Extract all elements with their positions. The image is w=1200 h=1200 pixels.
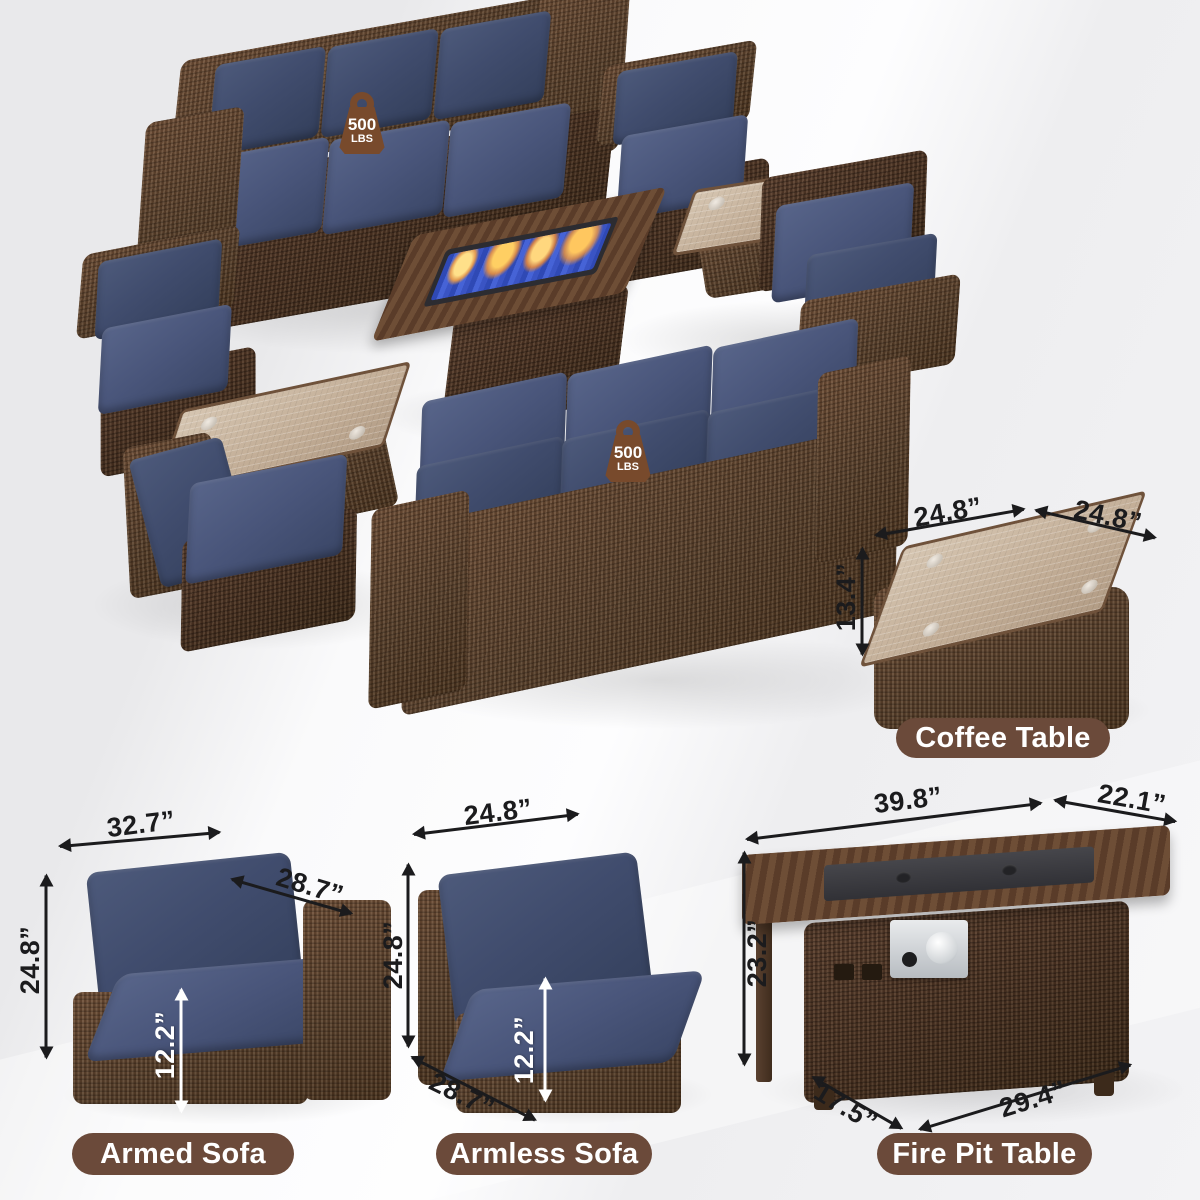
armed-sofa-seat-height-dim: 12.2” <box>150 1002 180 1088</box>
weight-value: 500 <box>348 116 376 133</box>
weight-icon-body: 500 LBS <box>338 107 386 154</box>
armless-sofa-seat-height-dim: 12.2” <box>509 1007 539 1093</box>
armless-sofa-label: Armless Sofa <box>436 1133 652 1175</box>
gas-control-panel <box>890 920 968 978</box>
coffee-table-product <box>862 505 1152 740</box>
armless-sofa-height-arrow <box>407 865 410 1047</box>
armless-sofa-product <box>418 855 703 1115</box>
fire-pit-burner-tray <box>423 216 619 307</box>
patio-set-dimension-infographic: 500 LBS <box>0 0 1200 1200</box>
armed-sofa-seat-height-arrow <box>180 990 183 1112</box>
ignition-button <box>902 952 917 967</box>
fire-pit-table-label-text: Fire Pit Table <box>892 1138 1076 1171</box>
armless-sofa-height-dim: 24.8” <box>378 912 408 998</box>
fire-pit-height-arrow <box>743 853 746 1065</box>
armed-sofa-label-text: Armed Sofa <box>100 1138 266 1171</box>
weight-capacity-icon: 500 LBS <box>338 92 386 154</box>
weight-icon-body: 500 LBS <box>604 435 652 482</box>
coffee-table-label: Coffee Table <box>896 718 1110 758</box>
armed-sofa-height-dim: 24.8” <box>15 917 45 1003</box>
fire-pit-burner-insert <box>824 846 1094 901</box>
coffee-table-height-arrow <box>861 549 864 655</box>
weight-capacity-icon: 500 LBS <box>604 420 652 482</box>
armed-sofa-height-arrow <box>45 876 48 1058</box>
gas-control-knob <box>926 932 958 964</box>
armless-sofa-seat-height-arrow <box>544 979 547 1101</box>
coffee-table-label-text: Coffee Table <box>915 722 1090 755</box>
weight-unit: LBS <box>617 462 639 473</box>
vent-hole <box>862 964 882 980</box>
fire-pit-height-dim: 23.2” <box>742 910 772 996</box>
armless-sofa-label-text: Armless Sofa <box>450 1138 639 1171</box>
weight-unit: LBS <box>351 134 373 145</box>
fire-pit-table-label: Fire Pit Table <box>877 1133 1092 1175</box>
fire-glass-flames <box>430 223 612 301</box>
sofa-armrest <box>368 489 469 710</box>
armed-sofa-label: Armed Sofa <box>72 1133 294 1175</box>
vent-hole <box>834 964 854 980</box>
coffee-table-height-dim: 13.4” <box>831 554 861 640</box>
fire-pit-table-product <box>742 832 1187 1117</box>
weight-value: 500 <box>614 444 642 461</box>
